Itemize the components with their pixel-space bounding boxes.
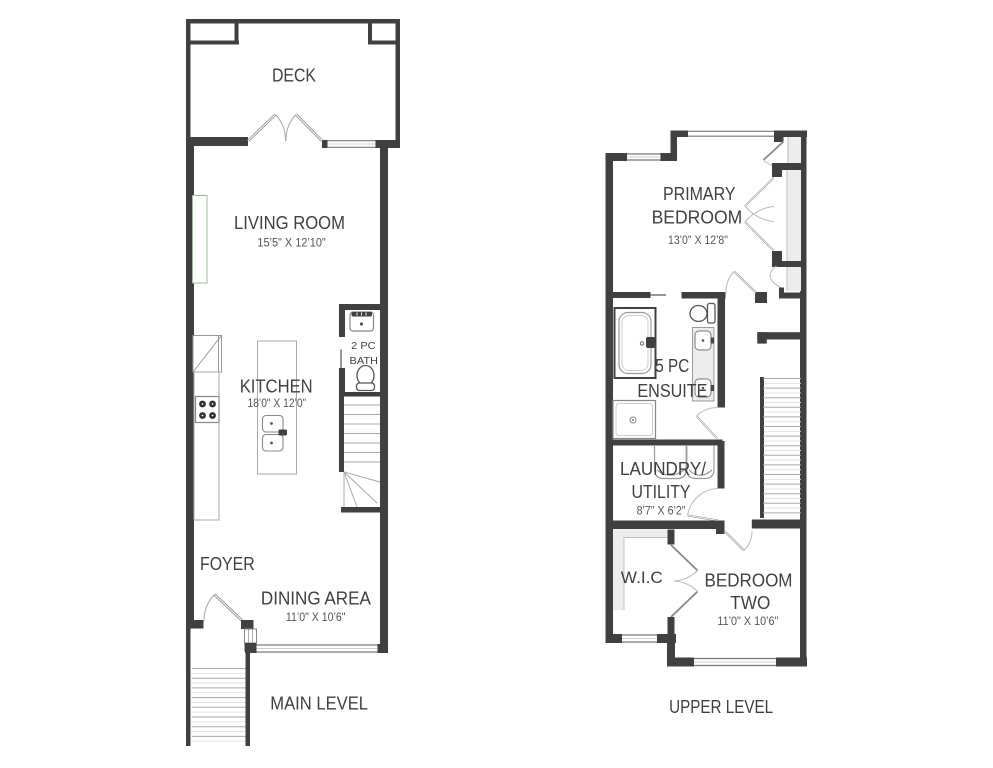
svg-text:UTILITY: UTILITY [632,481,691,502]
svg-text:TWO: TWO [730,592,770,613]
svg-text:11’0" X 10’6": 11’0" X 10’6" [717,616,778,628]
svg-text:FOYER: FOYER [200,553,255,574]
svg-text:MAIN LEVEL: MAIN LEVEL [270,693,368,714]
svg-text:5 PC: 5 PC [655,355,689,376]
svg-text:18’0" X 12’0": 18’0" X 12’0" [248,398,307,410]
svg-text:LIVING ROOM: LIVING ROOM [234,212,345,233]
svg-text:BEDROOM: BEDROOM [652,207,743,228]
svg-text:PRIMARY: PRIMARY [663,183,736,204]
svg-text:BATH: BATH [350,355,379,367]
svg-text:13’0" X 12’8": 13’0" X 12’8" [668,235,728,247]
svg-text:ENSUITE: ENSUITE [637,380,707,401]
svg-text:11’0" X 10’6": 11’0" X 10’6" [286,612,346,624]
svg-text:W.I.C: W.I.C [621,568,663,587]
svg-text:BEDROOM: BEDROOM [705,570,793,591]
svg-text:8’7" X 6’2": 8’7" X 6’2" [637,506,686,518]
svg-text:LAUNDRY/: LAUNDRY/ [620,458,707,479]
svg-text:15’5" X 12’10": 15’5" X 12’10" [257,238,325,250]
svg-text:KITCHEN: KITCHEN [240,376,313,397]
svg-text:DECK: DECK [272,65,317,86]
svg-text:2 PC: 2 PC [351,340,376,352]
svg-text:UPPER LEVEL: UPPER LEVEL [669,696,773,717]
svg-text:DINING AREA: DINING AREA [261,588,372,609]
